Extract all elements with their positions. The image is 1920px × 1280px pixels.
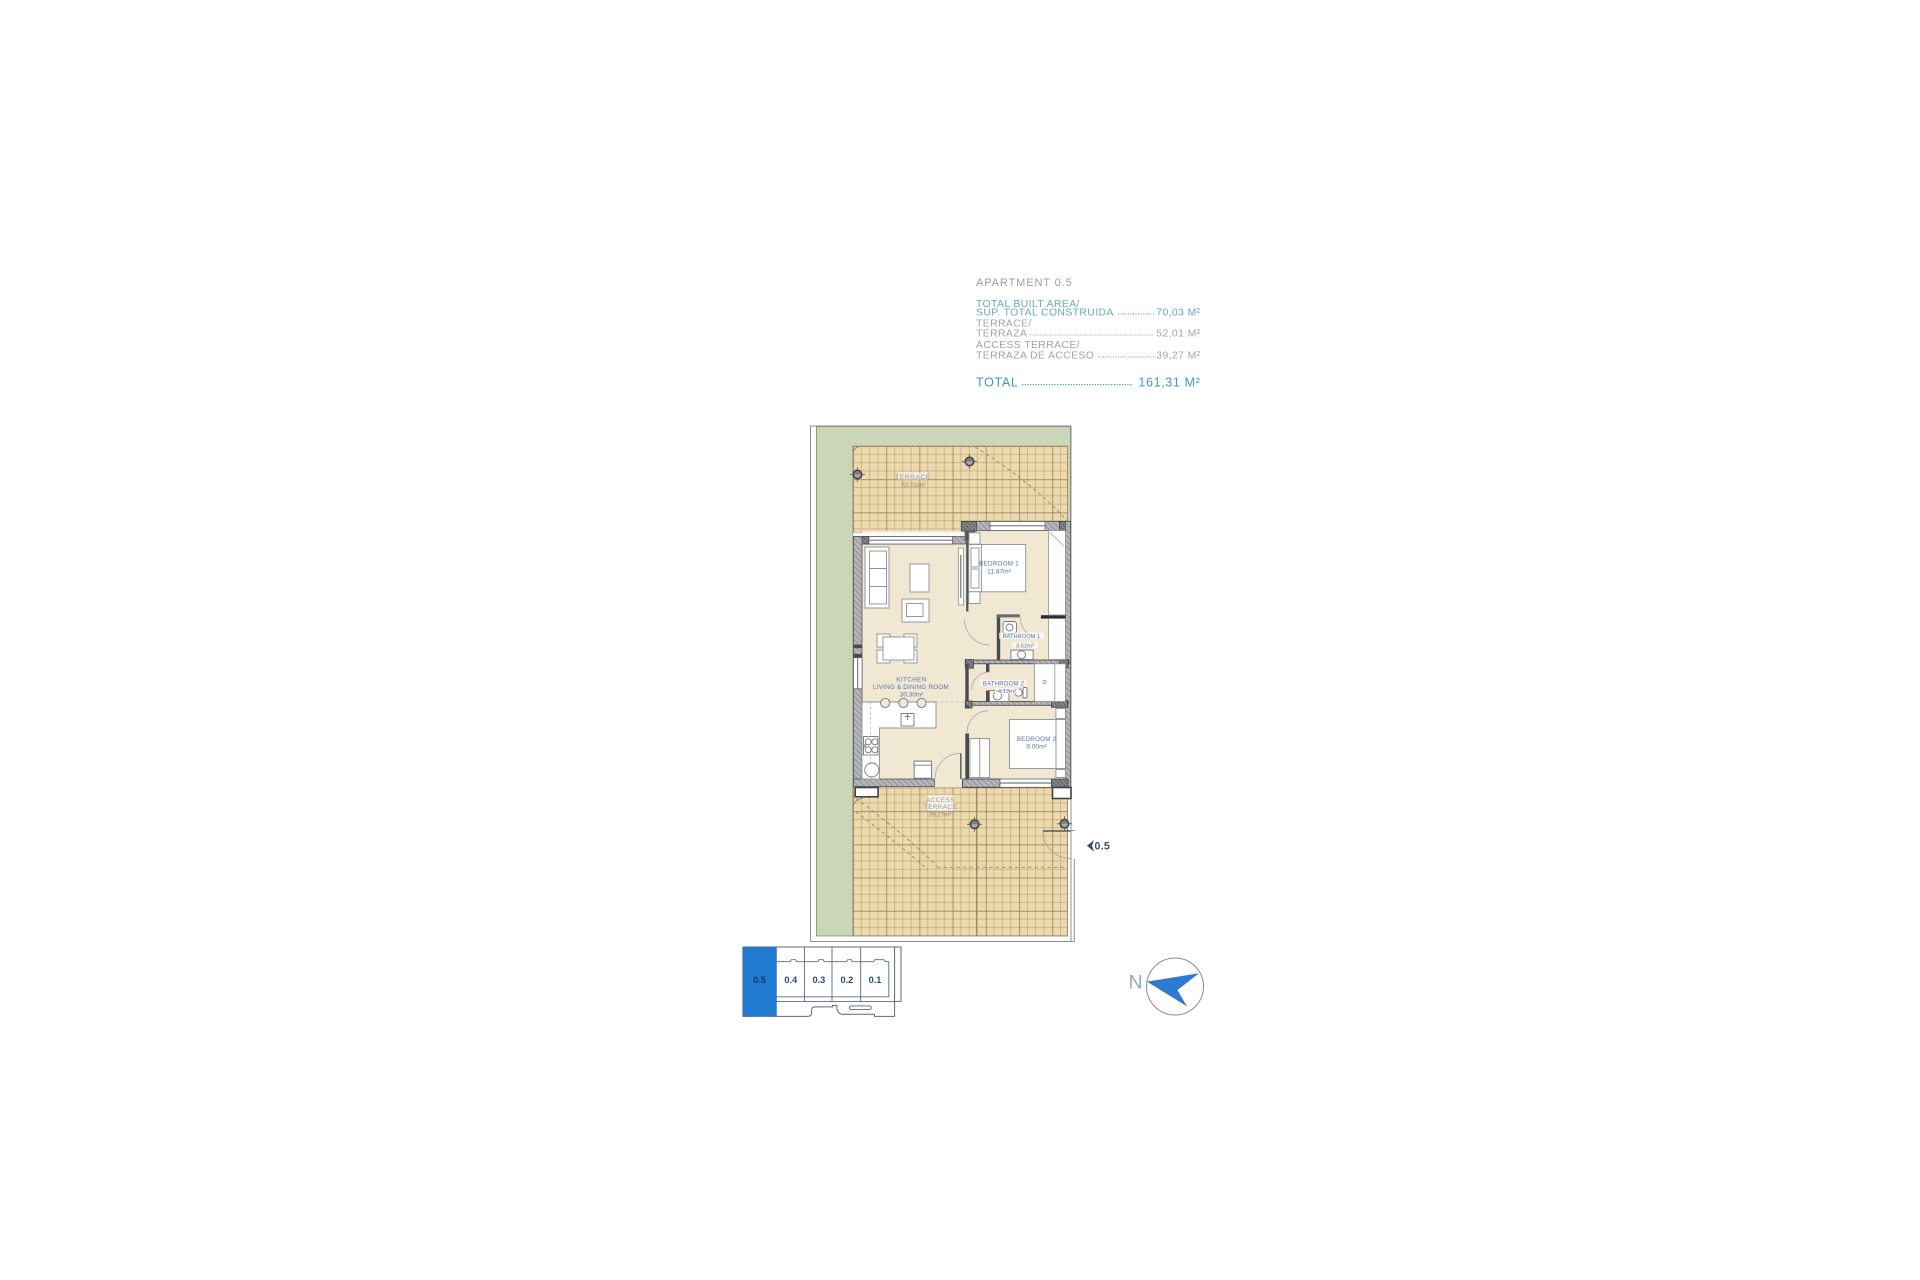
svg-text:161,31 M²: 161,31 M² [1138, 375, 1200, 389]
svg-text:11.87m²: 11.87m² [987, 568, 1012, 575]
svg-text:BEDROOM 1: BEDROOM 1 [979, 560, 1019, 567]
svg-text:4.12m²: 4.12m² [998, 689, 1016, 695]
svg-text:BEDROOM 2: BEDROOM 2 [1017, 736, 1057, 743]
svg-text:39.27m²: 39.27m² [929, 812, 952, 819]
svg-text:52,01 M²: 52,01 M² [1156, 329, 1200, 340]
svg-text:9.00m²: 9.00m² [1026, 744, 1047, 751]
svg-text:39,27 M²: 39,27 M² [1156, 351, 1200, 362]
svg-text:ACCESS: ACCESS [926, 797, 954, 804]
svg-text:70,03 M²: 70,03 M² [1156, 308, 1200, 319]
svg-text:SUP. TOTAL CONSTRUIDA: SUP. TOTAL CONSTRUIDA [976, 308, 1114, 319]
svg-text:0.5: 0.5 [753, 975, 766, 985]
svg-text:BATHROOM 1: BATHROOM 1 [1003, 634, 1041, 640]
svg-text:0.2: 0.2 [841, 975, 854, 985]
svg-text:N: N [1129, 972, 1143, 994]
svg-text:30.30m²: 30.30m² [900, 691, 923, 698]
svg-text:TERRAZA: TERRAZA [976, 329, 1027, 340]
svg-text:TOTAL: TOTAL [976, 375, 1018, 389]
svg-text:0.3: 0.3 [813, 975, 826, 985]
svg-text:0.4: 0.4 [784, 975, 798, 985]
svg-text:TERRACE: TERRACE [924, 804, 957, 811]
svg-text:KITCHEN: KITCHEN [896, 676, 926, 683]
svg-text:LIVING & DINING ROOM: LIVING & DINING ROOM [873, 684, 949, 691]
svg-text:BATHROOM 2: BATHROOM 2 [983, 681, 1025, 687]
svg-text:0.1: 0.1 [869, 975, 882, 985]
svg-text:TERRACE: TERRACE [895, 474, 930, 481]
svg-text:ACCESS TERRACE/: ACCESS TERRACE/ [976, 340, 1080, 351]
svg-text:0.5: 0.5 [1095, 841, 1111, 853]
svg-text:APARTMENT 0.5: APARTMENT 0.5 [976, 277, 1073, 289]
svg-text:3.52m²: 3.52m² [1016, 644, 1034, 650]
svg-text:52.01m²: 52.01m² [901, 482, 926, 489]
svg-text:TERRAZA DE ACCESO: TERRAZA DE ACCESO [976, 351, 1094, 362]
